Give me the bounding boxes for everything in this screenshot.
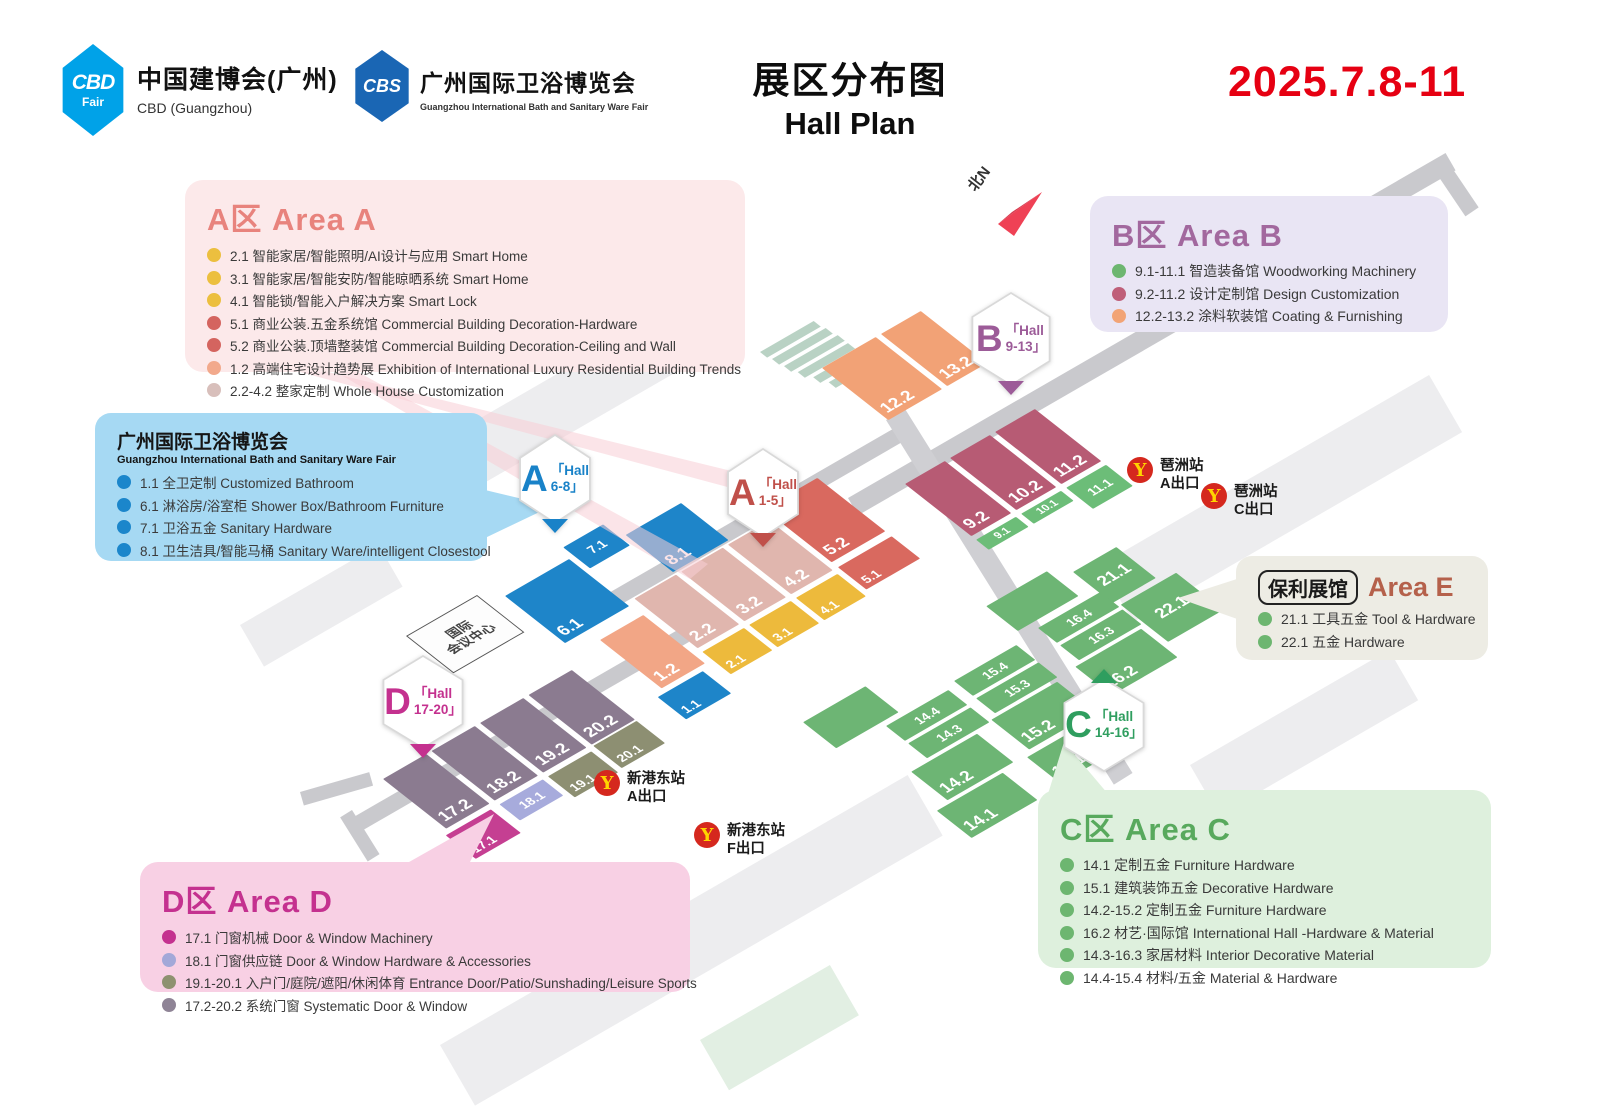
badge-hall-14-16: C 「Hall14-16」 [1060, 678, 1148, 772]
legend-item: 5.2 商业公装.顶墙整装馆 Commercial Building Decor… [207, 335, 723, 355]
badge-hall-range: 17-20」 [414, 702, 462, 718]
cbd-title-block: 中国建博会(广州) CBD (Guangzhou) [137, 60, 338, 116]
hall-unlabeled [803, 686, 899, 748]
badge-hall-word: 「Hall [1095, 709, 1143, 725]
legend-item-label: 8.1 卫生洁具/智能马桶 Sanitary Ware/intelligent … [140, 540, 491, 560]
legend-item-label: 22.1 五金 Hardware [1281, 632, 1405, 652]
station-name: 新港东站 [627, 770, 685, 788]
legend-area-c: C区 Area C 14.1 定制五金 Furniture Hardware15… [1038, 790, 1491, 968]
legend-item: 1.2 高端住宅设计趋势展 Exhibition of Internationa… [207, 358, 723, 378]
legend-item-label: 6.1 淋浴房/浴室柜 Shower Box/Bathroom Furnitur… [140, 495, 444, 515]
legend-area-d-items: 17.1 门窗机械 Door & Window Machinery18.1 门窗… [162, 927, 668, 1015]
cbs-subtitle: Guangzhou International Bath and Sanitar… [420, 102, 648, 112]
station-xingangdong-f: Y 新港东站F出口 [694, 822, 785, 858]
legend-item-label: 17.2-20.2 系统门窗 Systematic Door & Window [185, 995, 467, 1015]
legend-item: 1.1 全卫定制 Customized Bathroom [117, 472, 465, 492]
cbs-title: 广州国际卫浴博览会 [420, 64, 648, 98]
cbd-logo-text: CBD [72, 71, 115, 95]
badge-hall-9-13: B 「Hall9-13」 [968, 292, 1054, 386]
legend-item-label: 18.1 门窗供应链 Door & Window Hardware & Acce… [185, 950, 531, 970]
legend-item: 7.1 卫浴五金 Sanitary Hardware [117, 517, 465, 537]
badge-hall-range: 1-5」 [759, 493, 797, 509]
badge-hall-range: 14-16」 [1095, 725, 1143, 741]
legend-area-c-items: 14.1 定制五金 Furniture Hardware15.1 建筑装饰五金 … [1060, 855, 1469, 988]
road-y-arm [300, 772, 373, 805]
legend-dot-icon [1060, 881, 1074, 895]
legend-area-b-items: 9.1-11.1 智造装备馆 Woodworking Machinery9.2-… [1112, 261, 1426, 326]
legend-dot-icon [1060, 903, 1074, 917]
legend-item-label: 19.1-20.1 入户门/庭院/遮阳/休闲体育 Entrance Door/P… [185, 972, 697, 992]
north-arrow-shade [998, 192, 1042, 224]
background-band [240, 545, 403, 667]
badge-hall-1-5: A 「Hall1-5」 [724, 448, 802, 538]
legend-item: 8.1 卫生洁具/智能马桶 Sanitary Ware/intelligent … [117, 540, 465, 560]
legend-dot-icon [1060, 971, 1074, 985]
badge-letter: C [1065, 704, 1092, 746]
legend-dot-icon [1060, 926, 1074, 940]
legend-item: 16.2 材艺·国际馆 International Hall -Hardware… [1060, 923, 1469, 943]
legend-area-d-title: D区 Area D [162, 876, 668, 921]
legend-dot-icon [207, 271, 221, 285]
legend-item-label: 4.1 智能锁/智能入户解决方案 Smart Lock [230, 290, 477, 310]
legend-item-label: 14.2-15.2 定制五金 Furniture Hardware [1083, 900, 1327, 920]
legend-item-label: 5.1 商业公装.五金系统馆 Commercial Building Decor… [230, 313, 637, 333]
legend-area-e-items: 21.1 工具五金 Tool & Hardware22.1 五金 Hardwar… [1258, 609, 1466, 652]
legend-item: 9.2-11.2 设计定制馆 Design Customization [1112, 284, 1426, 304]
legend-dot-icon [117, 520, 131, 534]
legend-dot-icon [117, 543, 131, 557]
legend-dot-icon [207, 248, 221, 262]
station-xingangdong-a: Y 新港东站A出口 [594, 770, 685, 806]
legend-item: 14.3-16.3 家居材料 Interior Decorative Mater… [1060, 945, 1469, 965]
metro-icon: Y [1127, 457, 1153, 483]
legend-dot-icon [207, 338, 221, 352]
legend-item: 14.4-15.4 材料/五金 Material & Hardware [1060, 968, 1469, 988]
legend-bath-items: 1.1 全卫定制 Customized Bathroom6.1 淋浴房/浴室柜 … [117, 472, 465, 560]
metro-icon: Y [1201, 483, 1227, 509]
station-pazhou-c: Y 琶洲站C出口 [1201, 483, 1278, 519]
legend-item: 14.1 定制五金 Furniture Hardware [1060, 855, 1469, 875]
legend-item: 14.2-15.2 定制五金 Furniture Hardware [1060, 900, 1469, 920]
station-exit: A出口 [627, 788, 685, 806]
legend-item-label: 9.1-11.1 智造装备馆 Woodworking Machinery [1135, 261, 1416, 281]
legend-item: 19.1-20.1 入户门/庭院/遮阳/休闲体育 Entrance Door/P… [162, 972, 668, 992]
badge-hall-17-20: D 「Hall17-20」 [379, 655, 467, 749]
station-exit: C出口 [1234, 501, 1278, 519]
legend-item-label: 17.1 门窗机械 Door & Window Machinery [185, 927, 433, 947]
legend-area-a-title: A区 Area A [207, 194, 723, 239]
legend-item-label: 2.1 智能家居/智能照明/AI设计与应用 Smart Home [230, 245, 528, 265]
legend-item: 17.2-20.2 系统门窗 Systematic Door & Window [162, 995, 668, 1015]
legend-item: 9.1-11.1 智造装备馆 Woodworking Machinery [1112, 261, 1426, 281]
badge-hall-range: 9-13」 [1006, 339, 1047, 355]
legend-bath-fair: 广州国际卫浴博览会 Guangzhou International Bath a… [95, 413, 487, 561]
legend-item-label: 15.1 建筑装饰五金 Decorative Hardware [1083, 878, 1334, 898]
legend-item-label: 1.1 全卫定制 Customized Bathroom [140, 472, 354, 492]
legend-area-e-venue: 保利展馆 [1258, 570, 1358, 605]
cbd-title: 中国建博会(广州) [137, 60, 338, 96]
legend-item: 4.1 智能锁/智能入户解决方案 Smart Lock [207, 290, 723, 310]
north-label: 北N [965, 164, 994, 195]
legend-dot-icon [162, 998, 176, 1012]
legend-dot-icon [117, 498, 131, 512]
metro-icon: Y [594, 770, 620, 796]
legend-dot-icon [1112, 309, 1126, 323]
legend-item: 2.1 智能家居/智能照明/AI设计与应用 Smart Home [207, 245, 723, 265]
legend-area-d: D区 Area D 17.1 门窗机械 Door & Window Machin… [140, 862, 690, 992]
cbd-fair-logo: CBD Fair [60, 44, 126, 136]
legend-item: 18.1 门窗供应链 Door & Window Hardware & Acce… [162, 950, 668, 970]
station-exit: A出口 [1160, 475, 1204, 493]
legend-dot-icon [207, 316, 221, 330]
legend-item-label: 12.2-13.2 涂料软装馆 Coating & Furnishing [1135, 306, 1403, 326]
legend-bath-title: 广州国际卫浴博览会 [117, 427, 465, 454]
legend-dot-icon [1258, 635, 1272, 649]
legend-item-label: 14.1 定制五金 Furniture Hardware [1083, 855, 1295, 875]
legend-item: 6.1 淋浴房/浴室柜 Shower Box/Bathroom Furnitur… [117, 495, 465, 515]
badge-hall-word: 「Hall [1006, 323, 1047, 339]
station-name: 新港东站 [727, 822, 785, 840]
badge-letter: A [521, 458, 548, 500]
legend-area-b: B区 Area B 9.1-11.1 智造装备馆 Woodworking Mac… [1090, 196, 1448, 332]
cbs-logo-text: CBS [363, 76, 401, 97]
legend-item-label: 21.1 工具五金 Tool & Hardware [1281, 609, 1476, 629]
station-name: 琶洲站 [1234, 483, 1278, 501]
legend-item-label: 3.1 智能家居/智能安防/智能晾晒系统 Smart Home [230, 268, 529, 288]
legend-area-a: A区 Area A 2.1 智能家居/智能照明/AI设计与应用 Smart Ho… [185, 180, 745, 372]
legend-dot-icon [207, 293, 221, 307]
hall-plan-poster: CBD Fair 中国建博会(广州) CBD (Guangzhou) CBS 广… [0, 0, 1597, 1116]
background-green-band [700, 965, 859, 1090]
legend-area-b-title: B区 Area B [1112, 210, 1426, 255]
legend-item: 21.1 工具五金 Tool & Hardware [1258, 609, 1466, 629]
legend-item: 22.1 五金 Hardware [1258, 632, 1466, 652]
legend-area-a-items: 2.1 智能家居/智能照明/AI设计与应用 Smart Home3.1 智能家居… [207, 245, 723, 400]
legend-item: 15.1 建筑装饰五金 Decorative Hardware [1060, 878, 1469, 898]
legend-dot-icon [162, 930, 176, 944]
cbd-logo-sub: Fair [82, 95, 104, 109]
metro-icon: Y [694, 822, 720, 848]
station-exit: F出口 [727, 840, 785, 858]
legend-dot-icon [1112, 264, 1126, 278]
page-title: 展区分布图 Hall Plan [700, 50, 1000, 142]
legend-dot-icon [1258, 612, 1272, 626]
station-name: 琶洲站 [1160, 457, 1204, 475]
page-title-zh: 展区分布图 [700, 50, 1000, 104]
legend-item-label: 7.1 卫浴五金 Sanitary Hardware [140, 517, 332, 537]
event-date: 2025.7.8-11 [1228, 58, 1466, 107]
legend-dot-icon [1060, 948, 1074, 962]
legend-dot-icon [207, 383, 221, 397]
badge-hall-word: 「Hall [759, 477, 797, 493]
north-arrow [998, 192, 1042, 236]
legend-area-e: 保利展馆 Area E 21.1 工具五金 Tool & Hardware22.… [1236, 556, 1488, 660]
badge-letter: D [384, 681, 411, 723]
legend-item: 2.2-4.2 整家定制 Whole House Customization [207, 380, 723, 400]
cbd-subtitle: CBD (Guangzhou) [137, 100, 338, 116]
page-title-en: Hall Plan [700, 106, 1000, 142]
legend-dot-icon [162, 975, 176, 989]
legend-area-c-title: C区 Area C [1060, 804, 1469, 849]
legend-dot-icon [162, 953, 176, 967]
legend-item-label: 16.2 材艺·国际馆 International Hall -Hardware… [1083, 923, 1434, 943]
cbs-fair-logo: CBS [353, 50, 411, 122]
legend-item-label: 9.2-11.2 设计定制馆 Design Customization [1135, 284, 1399, 304]
badge-letter: B [976, 318, 1003, 360]
legend-item: 12.2-13.2 涂料软装馆 Coating & Furnishing [1112, 306, 1426, 326]
badge-letter: A [729, 472, 756, 514]
cbs-title-block: 广州国际卫浴博览会 Guangzhou International Bath a… [420, 64, 648, 112]
badge-hall-6-8: A 「Hall6-8」 [516, 434, 594, 524]
legend-item-label: 1.2 高端住宅设计趋势展 Exhibition of Internationa… [230, 358, 741, 378]
legend-item: 5.1 商业公装.五金系统馆 Commercial Building Decor… [207, 313, 723, 333]
legend-dot-icon [207, 361, 221, 375]
legend-dot-icon [1060, 858, 1074, 872]
legend-item: 3.1 智能家居/智能安防/智能晾晒系统 Smart Home [207, 268, 723, 288]
legend-bath-subtitle: Guangzhou International Bath and Sanitar… [117, 454, 465, 466]
legend-dot-icon [1112, 287, 1126, 301]
badge-hall-word: 「Hall [551, 463, 589, 479]
legend-item-label: 14.4-15.4 材料/五金 Material & Hardware [1083, 968, 1337, 988]
legend-item-label: 5.2 商业公装.顶墙整装馆 Commercial Building Decor… [230, 335, 676, 355]
legend-area-e-title: Area E [1368, 572, 1454, 603]
badge-hall-word: 「Hall [414, 686, 462, 702]
legend-item-label: 2.2-4.2 整家定制 Whole House Customization [230, 380, 504, 400]
legend-item-label: 14.3-16.3 家居材料 Interior Decorative Mater… [1083, 945, 1374, 965]
legend-dot-icon [117, 475, 131, 489]
legend-item: 17.1 门窗机械 Door & Window Machinery [162, 927, 668, 947]
badge-hall-range: 6-8」 [551, 479, 589, 495]
hall-6.1: 6.1 [505, 559, 629, 643]
station-pazhou-a: Y 琶洲站A出口 [1127, 457, 1204, 493]
